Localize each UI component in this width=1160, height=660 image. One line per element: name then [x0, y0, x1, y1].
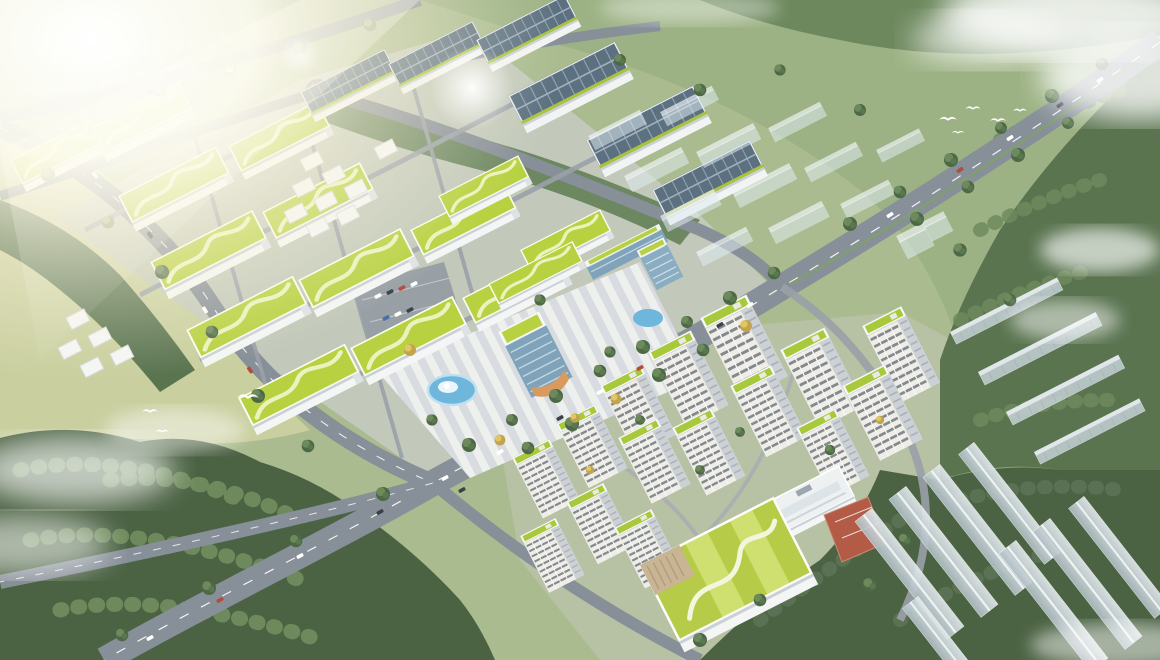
cloud — [1010, 300, 1120, 340]
masterplan-illustration — [0, 0, 1160, 660]
circular-fountain — [428, 375, 476, 405]
cloud — [910, 14, 1070, 66]
cloud — [1040, 228, 1160, 272]
aerial-rendering — [0, 0, 1160, 660]
fog-patch — [105, 408, 245, 452]
lens-flare — [430, 46, 514, 130]
reflecting-pond — [633, 309, 663, 327]
lens-flare — [280, 35, 320, 75]
